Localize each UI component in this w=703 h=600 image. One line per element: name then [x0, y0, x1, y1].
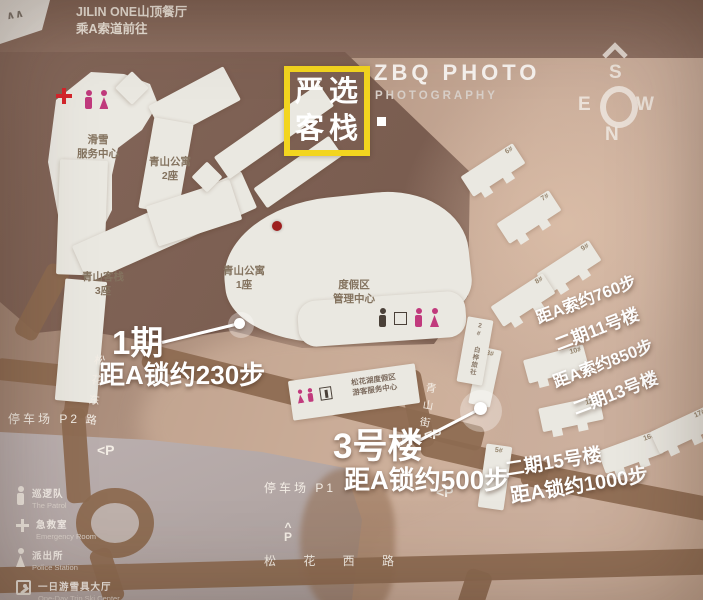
legend-text: 派出所Police Station: [32, 548, 78, 572]
building-6-label: 6#: [504, 146, 514, 156]
legend-text: 一日游雪具大厅One-Day Trip Ski Center: [38, 579, 120, 600]
bldg3-distance: 距A锁约500步: [344, 460, 510, 497]
road-label-songhua-west: 松 花 西 路: [264, 552, 406, 569]
parking-sign-left: <P: [97, 442, 115, 458]
phase1-marker-dot: [234, 318, 245, 329]
compass-right-letter: W: [636, 94, 654, 116]
legend-text: 急救室Emergency Room: [36, 517, 96, 541]
apt1-label: 青山公寓 1座: [208, 264, 280, 292]
resort-map-photo: 松花湖度假区 游客服务中心 6# 7# 9# 8# 10# 12# 16# 17…: [0, 0, 703, 600]
legend-text: 巡逻队The Patrol: [32, 486, 67, 510]
parking-p2-label: 停车场 P2: [8, 410, 80, 427]
building-7-label: 7#: [540, 193, 550, 203]
legend-en: Police Station: [32, 563, 78, 572]
ski-center-restroom-icons: [84, 90, 108, 115]
reception-person-icon: [378, 308, 387, 328]
restroom-female-icon: [430, 308, 439, 328]
mgmt-label: 度假区 管理中心: [318, 278, 390, 306]
brand-subtitle: PHOTOGRAPHY: [375, 90, 498, 102]
legend-item-emergency: 急救室Emergency Room: [16, 517, 146, 541]
apt2-label: 青山公寓 2座: [130, 155, 210, 183]
patrol-icon: [16, 486, 25, 506]
legend-en: Emergency Room: [36, 532, 96, 541]
compass: S E W N: [578, 44, 662, 156]
legend-item-ski-center: 一日游雪具大厅One-Day Trip Ski Center: [16, 579, 146, 600]
current-location-dot: [272, 221, 282, 231]
police-icon: [16, 548, 25, 568]
building-9-label: 9#: [580, 243, 590, 253]
legend-zh: 一日游雪具大厅: [38, 579, 120, 593]
inn-logo-box: 严选 客栈: [284, 66, 370, 156]
bldg3-marker-dot: [474, 402, 487, 415]
restroom-male-icon: [84, 90, 93, 110]
restroom-male-icon: [414, 308, 423, 328]
information-icon-glyph: [324, 390, 328, 398]
compass-left-letter: E: [578, 94, 591, 116]
compass-top-letter: S: [609, 62, 622, 84]
inn-logo-name: 严选 客栈: [295, 74, 363, 148]
restaurant-icon: [394, 312, 407, 325]
logo-dot: [377, 117, 386, 126]
building-8-label: 8#: [534, 276, 544, 286]
inn3-label: 青山客栈 3座: [72, 270, 134, 298]
legend-en: The Patrol: [32, 501, 67, 510]
legend-en: One-Day Trip Ski Center: [38, 594, 120, 600]
ski-center-icon: [16, 580, 31, 595]
building-17: 17#: [650, 406, 703, 454]
medical-cross-icon: [56, 88, 72, 104]
mgmt-service-icons: [378, 308, 439, 328]
parking-p1-label: 停车场 P1: [264, 479, 336, 496]
visitor-center-label: 松花湖度假区 游客服务中心: [334, 370, 414, 401]
legend-item-patrol: 巡逻队The Patrol: [16, 486, 146, 510]
compass-bottom-letter: N: [605, 124, 619, 146]
phase1-distance: 距A锁约230步: [99, 355, 265, 392]
building-17-label: 17#: [693, 408, 703, 419]
brand-name: ZBQ PHOTO: [374, 60, 540, 86]
emergency-cross-icon: [16, 519, 29, 532]
restroom-male-icon: [306, 388, 314, 403]
ski-center-label: 滑雪 服务中心: [58, 133, 138, 161]
restroom-female-icon: [99, 90, 108, 110]
legend-item-police: 派出所Police Station: [16, 548, 146, 572]
summit-restaurant-note: JILIN ONE山顶餐厅 乘A索道前往: [76, 4, 187, 38]
legend-zh: 急救室: [36, 517, 96, 531]
corner-sign-marks: ∧∧: [5, 7, 25, 23]
legend-zh: 巡逻队: [32, 486, 67, 500]
legend: 巡逻队The Patrol 急救室Emergency Room 派出所Polic…: [16, 486, 146, 600]
restroom-female-icon: [296, 389, 304, 404]
compass-ring: [600, 86, 638, 128]
birch-hostel-label: 2# 白桦旅社: [466, 322, 485, 377]
parking-sign-up: ^ P: [284, 522, 292, 542]
information-icon: [319, 386, 333, 401]
legend-zh: 派出所: [32, 548, 78, 562]
